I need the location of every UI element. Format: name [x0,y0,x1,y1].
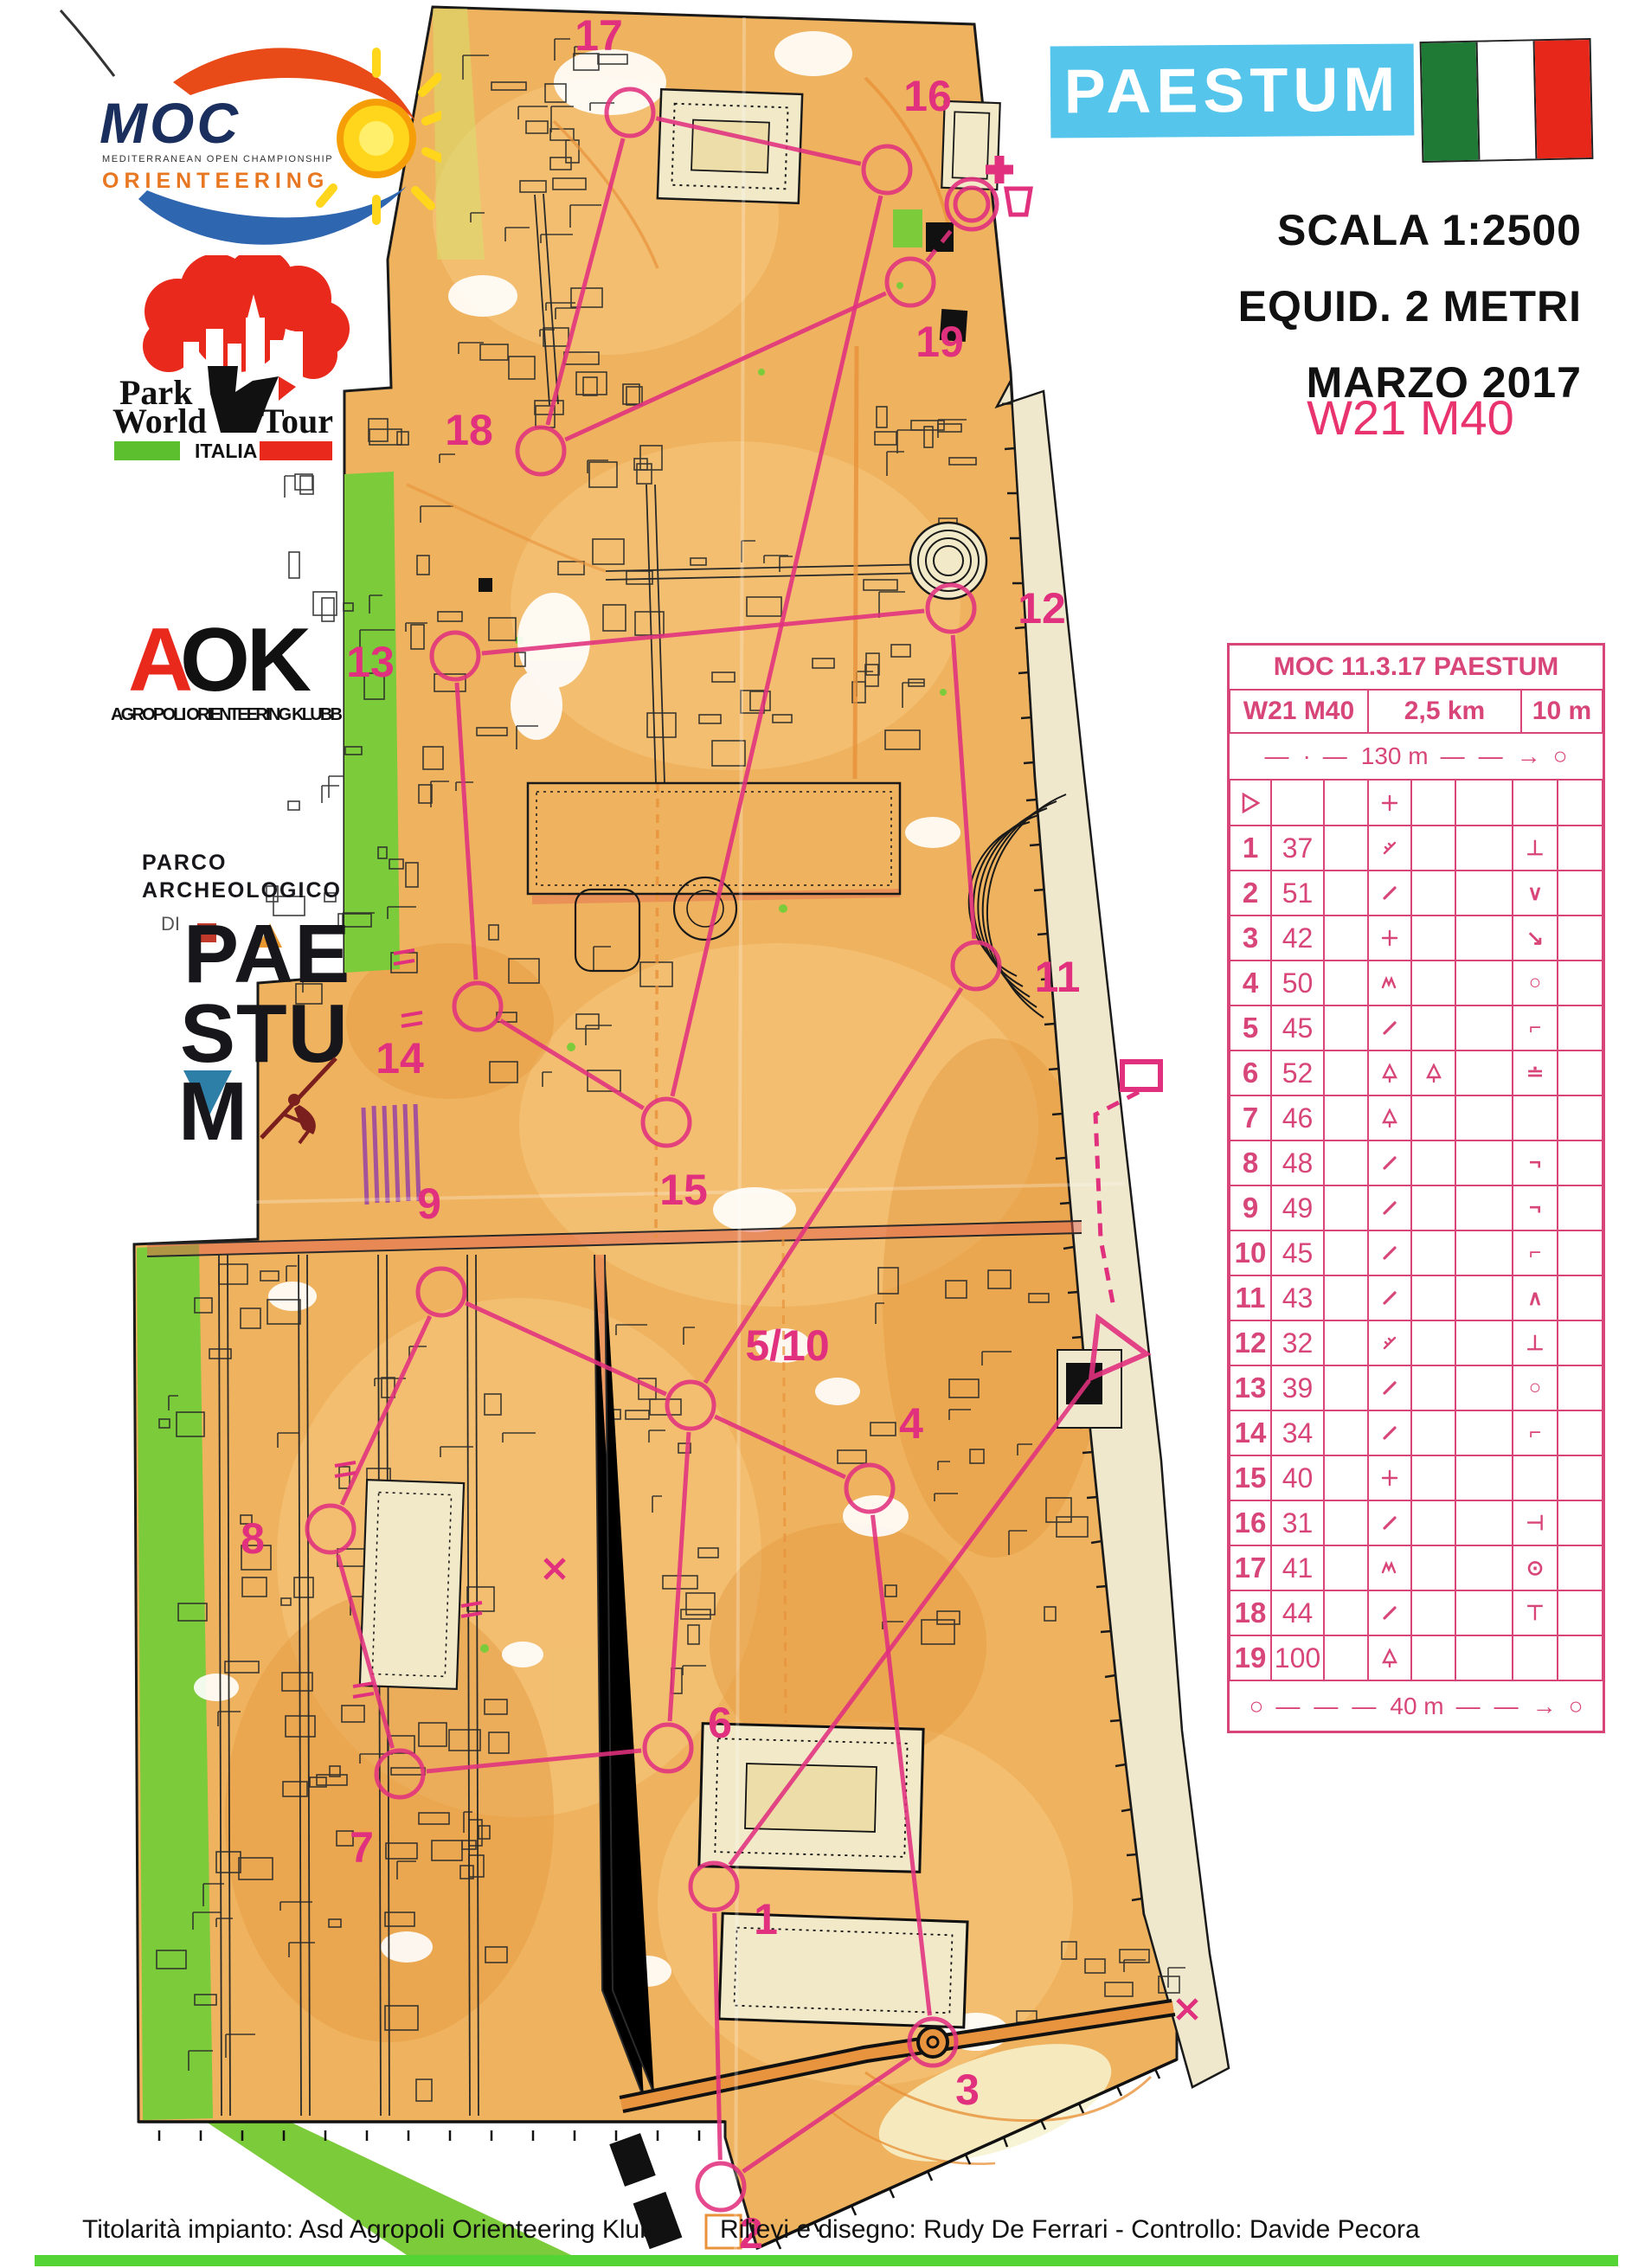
slash-symbol-icon [1378,1152,1401,1174]
control-number-cell: 7 [1230,1095,1271,1140]
feature-cell-2 [1411,1590,1455,1635]
empty-cell [1455,1455,1513,1500]
detail-cell: ↘ [1513,916,1558,961]
map-exchange-box [1122,1062,1160,1089]
empty-cell [1558,1410,1603,1455]
dash-decoration: — [1275,1693,1301,1720]
empty-cell [1324,1410,1368,1455]
control-row: 1844⊤ [1230,1590,1603,1635]
empty-cell [1324,1050,1368,1095]
feature-cell-2 [1411,916,1455,961]
control-row: 848¬ [1230,1140,1603,1185]
control-table-header: W21 M40 2,5 km 10 m [1230,690,1603,733]
feature-cell-2 [1411,1275,1455,1320]
control-row: 652≐ [1230,1050,1603,1095]
feature-cell [1368,1635,1411,1680]
empty-cell [1558,1365,1603,1410]
cross-symbol-icon [1378,1467,1401,1489]
control-number-label: 11 [1035,953,1081,1001]
control-code-cell: 41 [1271,1545,1324,1590]
moc-orienteering-label: ORIENTEERING [102,169,329,193]
empty-cell [1455,1185,1513,1230]
tree-symbol-icon [1423,1062,1445,1084]
moc-logo: MOC MEDITERRANEAN OPEN CHAMPIONSHIP ORIE… [35,22,441,290]
feature-cell-2 [1411,871,1455,916]
slash-symbol-icon [1378,1377,1401,1399]
feature-cell [1368,961,1411,1006]
tree-symbol-icon [1378,1062,1401,1084]
feature-cell-2 [1411,1320,1455,1365]
start-row [1230,780,1603,826]
control-number-cell: 5 [1230,1006,1271,1050]
slash-symbol-icon [1378,1512,1401,1534]
moc-subtitle: MEDITERRANEAN OPEN CHAMPIONSHIP [102,154,333,164]
empty-cell [1324,1320,1368,1365]
empty-cell [1324,871,1368,916]
feature-cell [1368,1545,1411,1590]
empty-cell [1558,1185,1603,1230]
flag-white-band [1476,41,1537,159]
map-info-block: SCALA 1:2500 EQUID. 2 METRI MARZO 2017 [1021,192,1582,421]
feature-cell-2 [1411,1185,1455,1230]
slash-symbol-icon [1378,1422,1401,1444]
pwt-italia-label: ITALIA [195,440,257,462]
detail-cell: ⌐ [1513,1410,1558,1455]
control-row: 1631⊣ [1230,1500,1603,1545]
map-scale: SCALA 1:2500 [1021,192,1582,268]
circle-icon: ○ [1249,1693,1263,1720]
empty-cell [1558,1500,1603,1545]
control-number-label: 14 [376,1034,424,1083]
control-number-label: 9 [417,1179,441,1228]
earthwall-symbol-icon [1378,972,1401,994]
dash-decoration: — [1264,742,1290,770]
empty-cell [1455,1050,1513,1095]
control-number-label: 17 [575,11,623,60]
empty-cell [1455,916,1513,961]
control-row: 251∨ [1230,871,1603,916]
empty-cell [1455,1365,1513,1410]
parco-line2: ARCHEOLOGICO [142,878,342,903]
feature-cell [1368,1185,1411,1230]
control-number-cell: 15 [1230,1455,1271,1500]
control-row: 1045⌐ [1230,1230,1603,1275]
control-number-cell: 14 [1230,1410,1271,1455]
control-row: 450○ [1230,961,1603,1006]
table-class: W21 M40 [1230,690,1368,733]
feature-cell [1368,916,1411,961]
control-table-title: MOC 11.3.17 PAESTUM [1230,646,1603,690]
parco-big-pae: PAE [183,908,350,1000]
detail-cell: ○ [1513,961,1558,1006]
feature-cell-2 [1411,1006,1455,1050]
control-number-label: 8 [241,1514,265,1563]
control-row: 1434⌐ [1230,1410,1603,1455]
feature-cell [1368,1050,1411,1095]
control-number-label: 1 [754,1895,778,1944]
detail-cell: ⌐ [1513,1230,1558,1275]
empty-cell [1455,1635,1513,1680]
aok-letters-ok: OK [180,610,312,710]
feature-cell-2 [1411,1635,1455,1680]
empty-cell [1324,1185,1368,1230]
empty-cell [1455,1545,1513,1590]
empty-cell [1324,961,1368,1006]
feature-cell [1368,826,1411,871]
control-number-cell: 8 [1230,1140,1271,1185]
fence-symbol-icon [1378,1332,1401,1354]
feature-cell-2 [1411,1095,1455,1140]
control-code-cell: 45 [1271,1230,1324,1275]
amphitheatre [910,523,986,599]
parco-di: DI [161,913,180,935]
feature-cell-2 [1411,1545,1455,1590]
sanctuary-colonnade [360,1480,464,1689]
footer-ownership-text: Titolarità impianto: Asd Agropoli Orient… [82,2215,669,2245]
control-number-label: 3 [955,2066,980,2114]
start-cell [1230,780,1271,826]
feature-cell [1368,1500,1411,1545]
dash-decoration: — [1352,1693,1378,1720]
empty-cell [1324,1140,1368,1185]
control-number-label: 5/10 [745,1321,829,1370]
empty-cell [1455,780,1513,826]
empty-cell [1324,1275,1368,1320]
tree-symbol-icon [1378,1107,1401,1129]
empty-cell [1455,1006,1513,1050]
control-code-cell: 100 [1271,1635,1324,1680]
control-row: 1232⊥ [1230,1320,1603,1365]
control-code-cell: 31 [1271,1500,1324,1545]
empty-cell [1455,1500,1513,1545]
pwt-word-world: World [112,402,207,440]
slash-symbol-icon [1378,882,1401,904]
empty-cell [1324,1590,1368,1635]
building-black [926,222,954,252]
empty-cell [1455,1590,1513,1635]
empty-cell [1324,916,1368,961]
feature-cell-2 [1411,961,1455,1006]
empty-cell [1558,1006,1603,1050]
control-number-cell: 18 [1230,1590,1271,1635]
control-number-label: 12 [1018,584,1066,633]
detail-cell: ⊣ [1513,1500,1558,1545]
feature-cell-2 [1411,1410,1455,1455]
finish-distance-value: 40 m [1390,1693,1443,1720]
detail-cell: ⌐ [1513,1006,1558,1050]
empty-cell [1455,826,1513,871]
control-code-cell: 51 [1271,871,1324,916]
control-code-cell: 48 [1271,1140,1324,1185]
empty-cell [1455,1320,1513,1365]
control-row: 137⊥ [1230,826,1603,871]
feature-cell-2 [1411,1365,1455,1410]
control-number-cell: 9 [1230,1185,1271,1230]
event-title: PAESTUM [1063,55,1400,128]
moc-wordmark: MOC [100,91,241,155]
control-number-cell: 12 [1230,1320,1271,1365]
control-number-label: 7 [350,1823,374,1872]
arrow-icon: → [1517,742,1541,770]
empty-cell [1411,780,1455,826]
empty-cell [1455,1230,1513,1275]
feature-cell [1368,1095,1411,1140]
control-code-cell: 39 [1271,1365,1324,1410]
empty-cell [1455,1095,1513,1140]
control-number-label: 19 [915,318,964,366]
control-row: 1540 [1230,1455,1603,1500]
detail-cell: ∧ [1513,1275,1558,1320]
detail-cell: ¬ [1513,1140,1558,1185]
control-code-cell: 44 [1271,1590,1324,1635]
control-number-cell: 10 [1230,1230,1271,1275]
feature-cell [1368,1320,1411,1365]
slash-symbol-icon [1378,1602,1401,1624]
control-number-label: 16 [903,72,952,120]
empty-cell [1271,780,1324,826]
pwt-red-notch [279,376,296,401]
empty-cell [1558,1455,1603,1500]
empty-cell [1324,780,1368,826]
control-code-cell: 40 [1271,1455,1324,1500]
detail-cell: ¬ [1513,1185,1558,1230]
earthwall-symbol-icon [1378,1557,1401,1579]
feature-cell-2 [1411,1455,1455,1500]
empty-cell [1324,1095,1368,1140]
control-row: 545⌐ [1230,1006,1603,1050]
control-number-cell: 17 [1230,1545,1271,1590]
aok-subtitle: AGROPOLI ORIENTEERING KLUBB [111,705,343,724]
detail-cell: ⊙ [1513,1545,1558,1590]
control-number-cell: 6 [1230,1050,1271,1095]
empty-cell [1455,961,1513,1006]
empty-cell [1558,1545,1603,1590]
control-number-label: 18 [445,406,493,454]
control-code-cell: 49 [1271,1185,1324,1230]
control-rows-container: 137⊥251∨342↘450○545⌐652≐746848¬949¬1045⌐… [1230,780,1603,1680]
control-code-cell: 42 [1271,916,1324,961]
dash-decoration: — [1456,1693,1482,1720]
control-code-cell: 34 [1271,1410,1324,1455]
bottom-green-strip [35,2255,1618,2266]
italian-flag-icon [1420,38,1594,163]
empty-cell [1558,1095,1603,1140]
control-row: 1143∧ [1230,1275,1603,1320]
detail-cell [1513,1455,1558,1500]
control-number-label: 15 [659,1166,708,1214]
slash-symbol-icon [1378,1287,1401,1309]
feature-cell [1368,1230,1411,1275]
feature-cell [1368,871,1411,916]
control-number-cell: 3 [1230,916,1271,961]
dash-decoration: · [1302,742,1310,770]
empty-cell [1558,826,1603,871]
slash-symbol-icon [1378,1197,1401,1219]
empty-cell [1324,1500,1368,1545]
feature-cell [1368,1275,1411,1320]
control-number-cell: 19 [1230,1635,1271,1680]
detail-cell: ∨ [1513,871,1558,916]
detail-cell: ⊤ [1513,1590,1558,1635]
control-row: 949¬ [1230,1185,1603,1230]
control-number-cell: 13 [1230,1365,1271,1410]
detail-cell [1513,1635,1558,1680]
dash-decoration: — [1479,742,1505,770]
empty-cell [1558,871,1603,916]
slash-symbol-icon [1378,1017,1401,1039]
dash-decoration: — [1441,742,1467,770]
feature-cell [1368,780,1411,826]
control-row: 1741⊙ [1230,1545,1603,1590]
control-code-cell: 45 [1271,1006,1324,1050]
empty-cell [1558,916,1603,961]
parco-line1: PARCO [142,851,227,875]
control-number-cell: 11 [1230,1275,1271,1320]
detail-cell: ⊥ [1513,1320,1558,1365]
control-number-cell: 2 [1230,871,1271,916]
scanned-orienteering-map-page: 12345/106789111213141516171819 MOC MEDIT… [0,0,1651,2268]
control-code-cell: 50 [1271,961,1324,1006]
control-number-label: 4 [899,1399,923,1448]
pwt-green-bar [114,441,180,460]
park-world-tour-logo: Park World Tour ITALIA [87,255,372,472]
control-description-table: MOC 11.3.17 PAESTUM W21 M40 2,5 km 10 m … [1227,643,1605,1733]
empty-cell [1558,1635,1603,1680]
feature-cell [1368,1455,1411,1500]
control-code-cell: 52 [1271,1050,1324,1095]
feature-cell [1368,1365,1411,1410]
fence-symbol-icon [1378,837,1401,859]
finish-distance-row: ○ — — — 40 m — — → ○ [1230,1680,1603,1731]
feature-cell [1368,1410,1411,1455]
empty-cell [1558,1275,1603,1320]
feature-cell [1368,1140,1411,1185]
dash-decoration: — [1323,742,1349,770]
dash-decoration: — [1494,1693,1520,1720]
slash-symbol-icon [1378,1242,1401,1264]
pwt-red-bar [260,441,332,460]
start-distance-row: — · — 130 m — — → ○ [1230,733,1603,780]
cross-symbol-icon [1378,927,1401,949]
event-title-banner: PAESTUM [1050,44,1415,138]
empty-cell [1513,780,1558,826]
flag-green-band [1422,42,1479,161]
control-code-cell: 43 [1271,1275,1324,1320]
control-row: 342↘ [1230,916,1603,961]
detail-cell: ⊥ [1513,826,1558,871]
start-triangle-icon [1237,790,1263,816]
control-number-cell: 4 [1230,961,1271,1006]
control-code-cell: 32 [1271,1320,1324,1365]
pwt-word-tour: Tour [261,402,333,440]
empty-cell [1455,1410,1513,1455]
cross-symbol-icon [1378,792,1401,814]
empty-cell [1324,826,1368,871]
temple-neptune [699,1724,923,1873]
feature-cell-2 [1411,1140,1455,1185]
control-code-cell: 37 [1271,826,1324,871]
empty-cell [1558,1140,1603,1185]
empty-cell [1558,1230,1603,1275]
control-number-cell: 1 [1230,826,1271,871]
empty-cell [1455,1140,1513,1185]
circle-icon: ○ [1553,742,1568,770]
feature-cell [1368,1006,1411,1050]
control-row: 746 [1230,1095,1603,1140]
feature-cell-2 [1411,1500,1455,1545]
empty-cell [1558,1050,1603,1095]
empty-cell [1324,1006,1368,1050]
empty-cell [1324,1365,1368,1410]
start-distance-value: 130 m [1361,742,1429,770]
course-class-label: W21 M40 [1237,389,1584,446]
empty-cell [1558,961,1603,1006]
empty-cell [1558,1320,1603,1365]
table-climb: 10 m [1521,690,1603,733]
empty-cell [1558,1590,1603,1635]
detail-cell: ≐ [1513,1050,1558,1095]
detail-cell [1513,1095,1558,1140]
feature-cell [1368,1590,1411,1635]
circle-icon: ○ [1569,1693,1584,1720]
control-row: 1339○ [1230,1365,1603,1410]
detail-cell: ○ [1513,1365,1558,1410]
empty-cell [1455,1275,1513,1320]
aok-logo: A OK AGROPOLI ORIENTEERING KLUBB [104,606,355,731]
dash-decoration: — [1314,1693,1339,1720]
empty-cell [1324,1635,1368,1680]
arrow-icon: → [1532,1693,1557,1720]
empty-cell [1455,871,1513,916]
feature-cell-2 [1411,1230,1455,1275]
feature-cell-2 [1411,826,1455,871]
parco-big-m: M [178,1065,247,1147]
moc-blue-swoosh [138,186,407,245]
empty-cell [1324,1455,1368,1500]
empty-cell [1324,1230,1368,1275]
parco-paestum-logo: PARCO ARCHEOLOGICO DI PAE STU M [130,844,381,1147]
control-code-cell: 46 [1271,1095,1324,1140]
map-equidistance: EQUID. 2 METRI [1021,268,1582,344]
control-number-label: 6 [708,1699,732,1747]
footer-credits-text: Rilievi e disegno: Rudy De Ferrari - Con… [720,2215,1420,2245]
table-course-length: 2,5 km [1368,690,1521,733]
control-number-cell: 16 [1230,1500,1271,1545]
tree-symbol-icon [1378,1647,1401,1669]
flag-red-band [1534,40,1591,158]
empty-cell [1558,780,1603,826]
feature-cell-2 [1411,1050,1455,1095]
empty-cell [1324,1545,1368,1590]
control-row: 19100 [1230,1635,1603,1680]
